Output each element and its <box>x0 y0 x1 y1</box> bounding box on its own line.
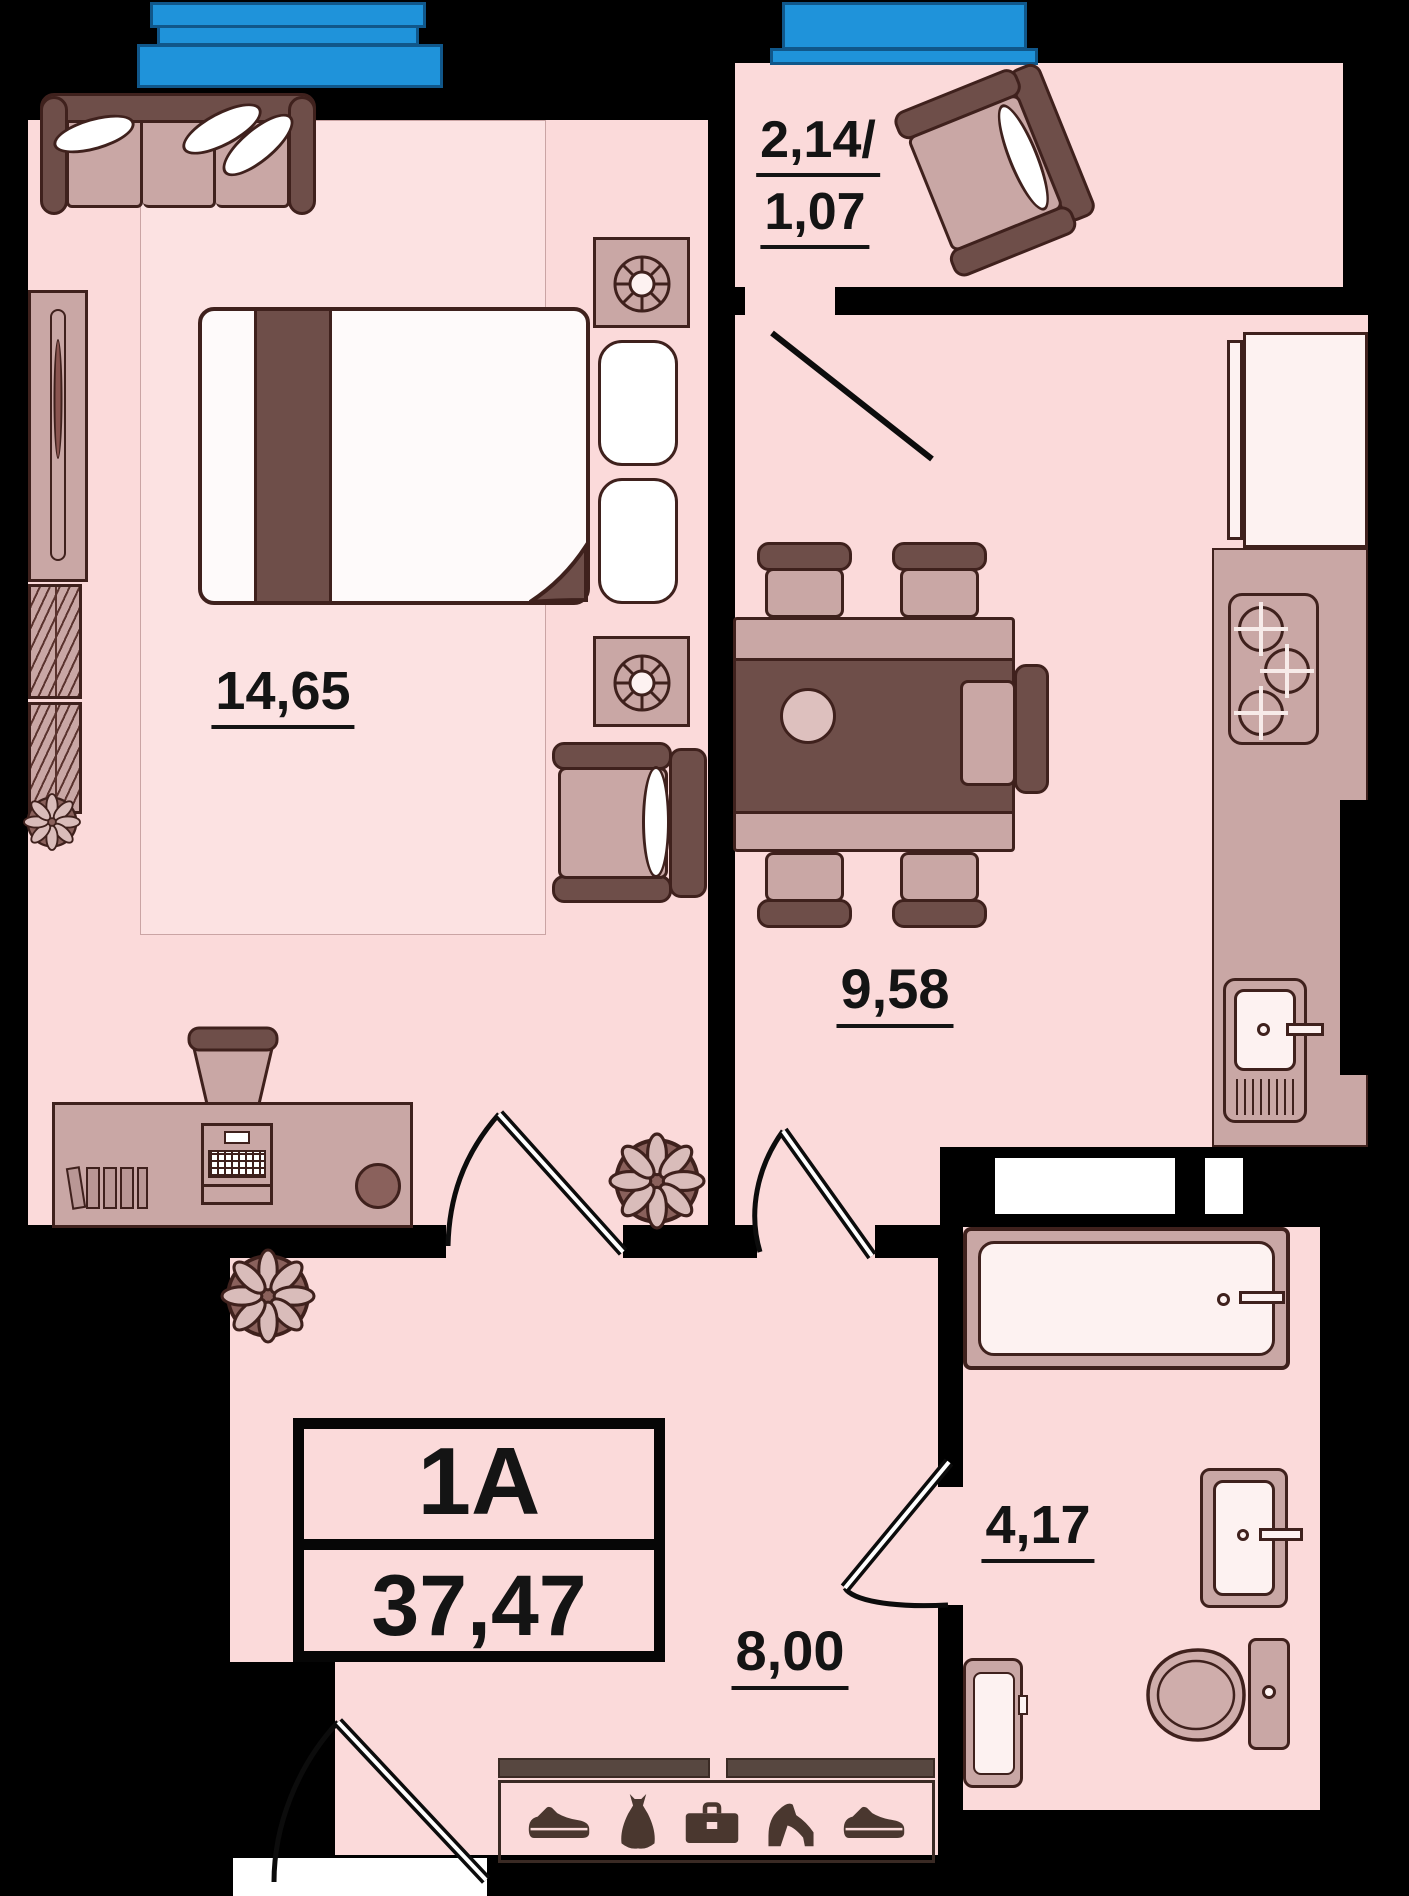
kitchen-door <box>755 1131 872 1256</box>
door-swings <box>0 0 1409 1896</box>
entry-door <box>274 1722 486 1882</box>
balcony-door <box>772 333 932 459</box>
bathroom-door <box>845 1462 949 1606</box>
bedroom-door <box>448 1114 623 1252</box>
floor-plan: 14,65 9,58 2,14/ 1,07 8,00 4,17 1A 37,47 <box>0 0 1409 1896</box>
